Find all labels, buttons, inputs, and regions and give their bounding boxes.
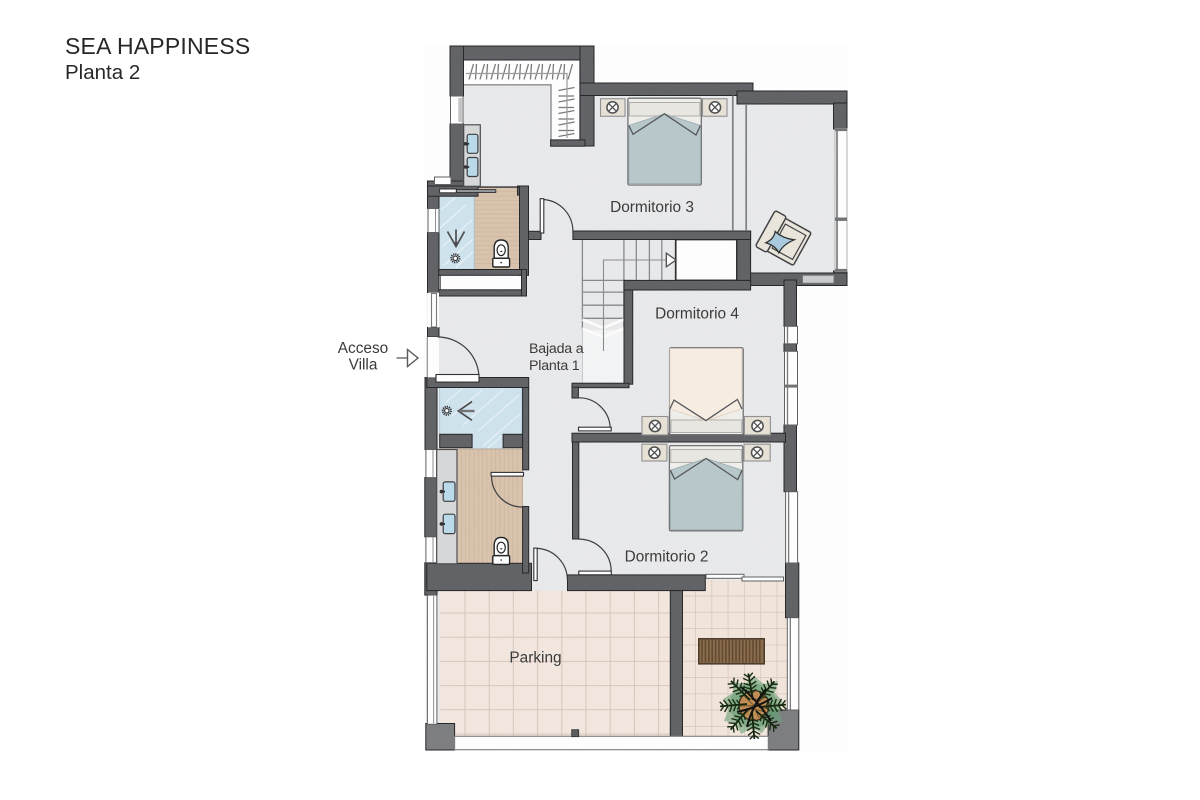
svg-text:SEA HAPPINESS: SEA HAPPINESS	[65, 33, 250, 59]
svg-text:Parking: Parking	[509, 650, 561, 667]
svg-text:Villa: Villa	[349, 357, 378, 374]
svg-text:Acceso: Acceso	[338, 340, 388, 357]
svg-text:Dormitorio 4: Dormitorio 4	[655, 306, 739, 323]
svg-text:Bajada a: Bajada a	[529, 341, 584, 357]
svg-text:Dormitorio 2: Dormitorio 2	[625, 549, 709, 566]
svg-text:Dormitorio 3: Dormitorio 3	[610, 199, 694, 216]
svg-text:Planta 2: Planta 2	[65, 61, 140, 84]
svg-text:Planta 1: Planta 1	[529, 358, 580, 374]
